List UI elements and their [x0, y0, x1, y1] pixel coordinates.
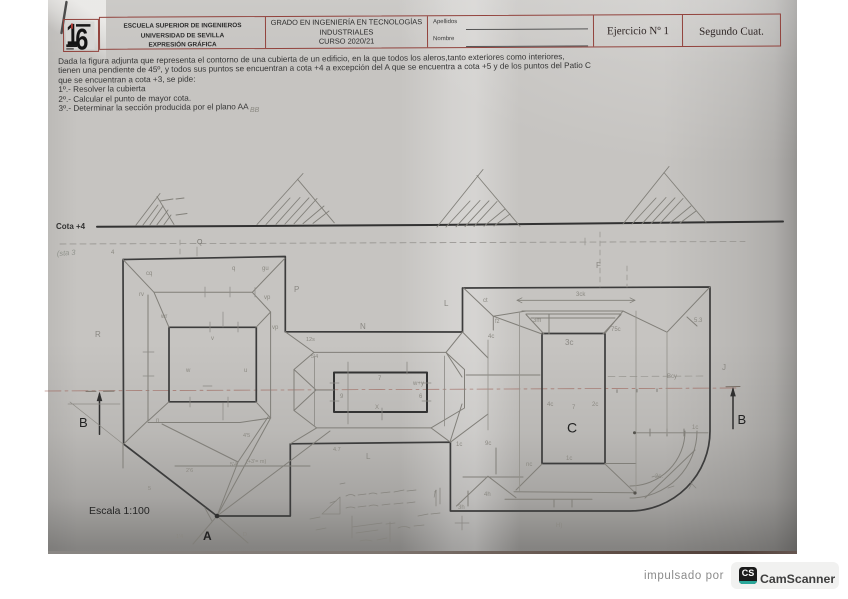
- svg-text:w: w: [185, 368, 191, 374]
- svg-text:cq: cq: [146, 271, 152, 277]
- svg-text:rv: rv: [139, 292, 144, 298]
- svg-text:4c: 4c: [547, 402, 553, 408]
- svg-text:R: R: [95, 330, 101, 339]
- svg-text:5.3: 5.3: [694, 318, 703, 324]
- svg-text:(+3'= m): (+3'= m): [246, 459, 266, 465]
- svg-text:gu: gu: [262, 266, 269, 272]
- svg-text:75c: 75c: [611, 327, 621, 333]
- svg-text:L: L: [366, 452, 371, 461]
- svg-text:w+y: w+y: [412, 381, 424, 387]
- svg-text:u: u: [244, 368, 247, 374]
- svg-text:P: P: [294, 285, 299, 294]
- svg-text:A: A: [203, 529, 212, 543]
- svg-text:4h: 4h: [484, 492, 491, 498]
- svg-text:(sta 3: (sta 3: [57, 248, 77, 258]
- svg-text:Bcy: Bcy: [667, 374, 677, 380]
- svg-text:4.7: 4.7: [333, 447, 341, 453]
- svg-text:5: 5: [148, 486, 151, 492]
- svg-text:fz: fz: [495, 319, 500, 325]
- svg-text:n: n: [156, 418, 159, 424]
- svg-text:9: 9: [340, 394, 344, 400]
- svg-text:7: 7: [572, 405, 576, 411]
- svg-text:vp: vp: [264, 295, 271, 301]
- svg-text:vp: vp: [272, 325, 279, 331]
- svg-text:4'5: 4'5: [243, 433, 250, 439]
- svg-text:nc: nc: [526, 462, 532, 468]
- svg-text:1c: 1c: [692, 425, 698, 431]
- svg-text:N: N: [360, 322, 366, 331]
- svg-text:7: 7: [378, 376, 382, 382]
- svg-text:Escala 1:100: Escala 1:100: [89, 505, 150, 517]
- svg-text:v: v: [211, 336, 214, 342]
- svg-text:wr: wr: [160, 314, 167, 320]
- svg-text:1c: 1c: [566, 456, 572, 462]
- svg-text:ct: ct: [483, 298, 488, 304]
- svg-text:BB: BB: [250, 107, 260, 114]
- svg-text:L: L: [444, 299, 449, 308]
- svg-text:3h: 3h: [458, 505, 465, 511]
- svg-text:5'4: 5'4: [230, 462, 237, 468]
- svg-text:12s: 12s: [306, 337, 315, 343]
- svg-text:9c: 9c: [485, 441, 491, 447]
- svg-text:J: J: [722, 363, 726, 372]
- svg-text:q: q: [232, 266, 235, 272]
- svg-text:Cota +4: Cota +4: [56, 222, 86, 231]
- svg-text:6: 6: [419, 394, 423, 400]
- svg-text:3m: 3m: [533, 318, 541, 324]
- svg-text:Q: Q: [197, 239, 203, 246]
- svg-text:D: D: [243, 532, 247, 538]
- svg-text:4c: 4c: [488, 334, 494, 340]
- svg-text:C: C: [567, 420, 577, 436]
- svg-text:1c: 1c: [456, 442, 462, 448]
- svg-text:1'4: 1'4: [176, 534, 183, 540]
- svg-text:H): H): [556, 523, 562, 529]
- svg-text:ƒ: ƒ: [433, 489, 437, 498]
- svg-text:F: F: [596, 261, 601, 270]
- svg-text:3c: 3c: [565, 338, 573, 347]
- svg-text:2c: 2c: [592, 402, 598, 408]
- svg-text:B: B: [79, 415, 88, 430]
- svg-text:4: 4: [111, 250, 115, 256]
- svg-text:X: X: [375, 405, 379, 411]
- svg-text:B: B: [738, 412, 747, 427]
- svg-text:2'6: 2'6: [186, 468, 193, 474]
- svg-text:3ck: 3ck: [576, 292, 586, 298]
